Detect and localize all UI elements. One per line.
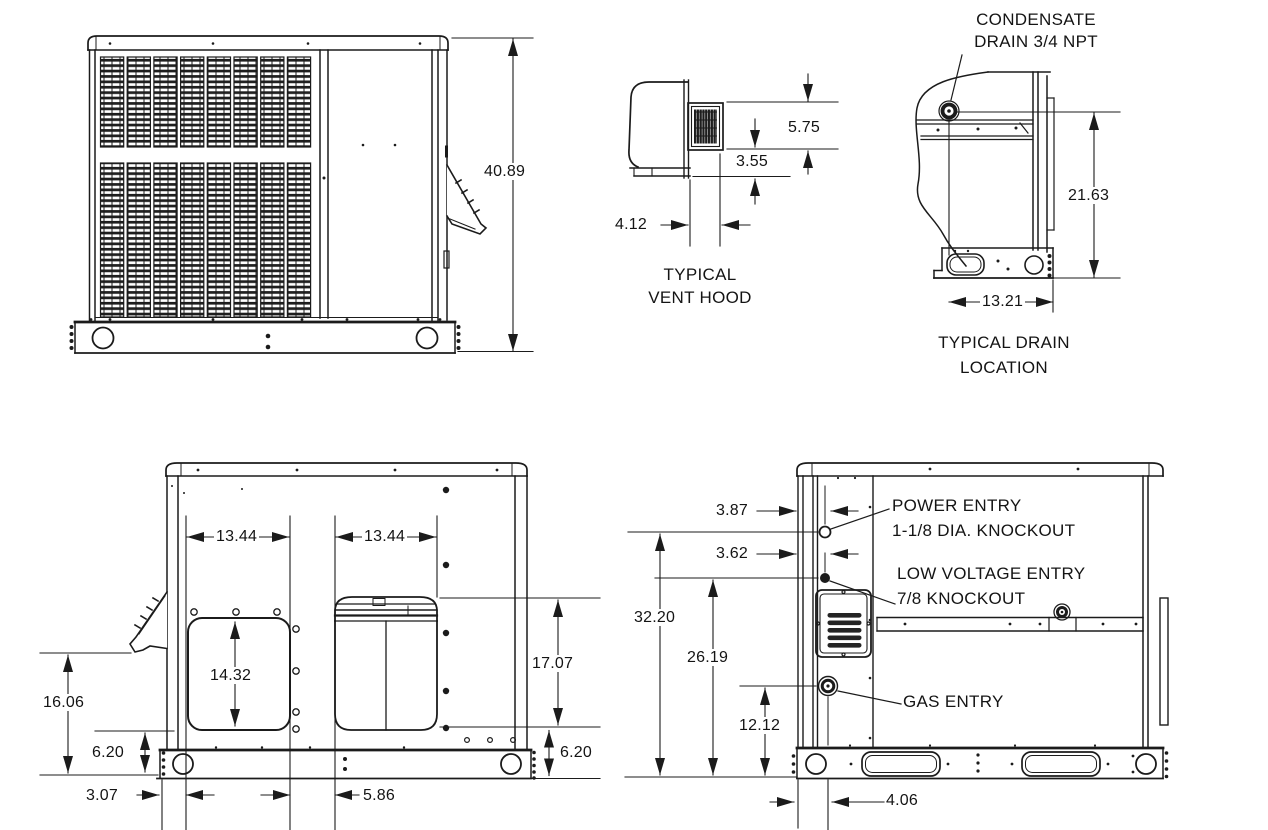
low-voltage-callout-line1: LOW VOLTAGE ENTRY: [897, 565, 1085, 582]
power-entry-callout-line2: 1-1/8 DIA. KNOCKOUT: [892, 522, 1075, 539]
dim-drain-height-text: 21.63: [1066, 187, 1111, 204]
louver-panel: [101, 57, 311, 317]
gas-entry-callout: GAS ENTRY: [903, 693, 1004, 710]
mounting-rail: [917, 120, 1033, 140]
dim-gas-height-text: 12.12: [737, 717, 782, 734]
combustion-air-louver: [816, 590, 871, 657]
line-art: [0, 0, 1268, 830]
dim-opening-gap-text: 5.86: [363, 787, 395, 804]
dim-power-height-text: 32.20: [632, 609, 677, 626]
condensate-drain-fitting: [939, 101, 959, 121]
dim-right-height-text: 17.07: [530, 655, 575, 672]
panel-screw-dots: [443, 487, 449, 731]
dim-return-width-text: 13.44: [362, 528, 407, 545]
dim-base-right-text: 6.20: [560, 744, 592, 761]
low-voltage-leader-line: [830, 581, 895, 604]
gas-leader-line: [838, 691, 901, 704]
dimensional-drawing-sheet: 40.89 5.75 3.55 4.12 TYPICAL VENT HOOD C…: [0, 0, 1268, 830]
power-entry-callout-line1: POWER ENTRY: [892, 497, 1022, 514]
dim-gas-offset-text: 4.06: [886, 792, 918, 809]
dim-overall-height-text: 40.89: [482, 163, 527, 180]
power-entry-knockout: [820, 527, 831, 538]
side-tab: [1160, 598, 1168, 725]
vent-hood-caption: TYPICAL VENT HOOD: [635, 263, 765, 309]
dim-supply-width-text: 13.44: [214, 528, 259, 545]
vent-hood-profile: [629, 82, 688, 167]
dim-vent-depth-text: 4.12: [615, 216, 647, 233]
cap-screw-dots: [109, 42, 422, 45]
view-typical-vent-hood: [629, 74, 838, 246]
view-typical-drain-location: [916, 55, 1120, 312]
rigging-hole: [173, 754, 193, 774]
grommet: [1054, 604, 1070, 620]
view-duct-side-elevation: [40, 463, 600, 830]
gas-entry-fitting: [819, 677, 838, 696]
low-voltage-knockout: [820, 573, 830, 583]
base-corner: [934, 248, 1053, 278]
rigging-hole: [417, 328, 438, 349]
rigging-hole: [501, 754, 521, 774]
dim-base-left-text: 6.20: [92, 744, 124, 761]
dim-supply-height-text: 14.32: [208, 667, 253, 684]
condensate-drain-callout: CONDENSATE DRAIN 3/4 NPT: [952, 9, 1120, 53]
condensate-callout-line2: DRAIN 3/4 NPT: [952, 31, 1120, 53]
dim-left-height-text: 16.06: [41, 694, 86, 711]
vent-hood-caption-line2: VENT HOOD: [635, 286, 765, 309]
drain-dimensions: [949, 112, 1120, 312]
base-rail: [792, 748, 1169, 779]
rigging-hole: [806, 754, 826, 774]
flue-hood: [130, 592, 167, 652]
power-leader-line: [831, 509, 889, 529]
base-rail: [70, 318, 461, 353]
dim-lv-height-text: 26.19: [685, 649, 730, 666]
rigging-hole: [1136, 754, 1156, 774]
view-control-side-elevation: [625, 463, 1168, 830]
condensate-callout-line1: CONDENSATE: [952, 9, 1120, 31]
control-side-dimensions: [625, 511, 884, 828]
dim-drain-width-text: 13.21: [980, 293, 1025, 310]
flue-hood: [447, 147, 487, 234]
return-duct-opening: [335, 597, 437, 730]
base-rail: [157, 738, 536, 780]
dim-lv-offset-text: 3.62: [716, 545, 748, 562]
rigging-hole: [93, 328, 114, 349]
rigging-hole: [1025, 256, 1043, 274]
dim-vent-mid-text: 3.55: [736, 153, 768, 170]
low-voltage-callout-line2: 7/8 KNOCKOUT: [897, 590, 1025, 607]
drain-caption-line1: TYPICAL DRAIN: [918, 330, 1090, 355]
mid-rail: [877, 618, 1143, 632]
drain-caption-line2: LOCATION: [918, 355, 1090, 380]
dim-vent-top-text: 5.75: [788, 119, 820, 136]
duct-side-dimensions: [40, 516, 600, 830]
dim-power-offset-text: 3.87: [716, 502, 748, 519]
vent-hood-caption-line1: TYPICAL: [635, 263, 765, 286]
dim-corner-offset-text: 3.07: [86, 787, 118, 804]
drain-location-caption: TYPICAL DRAIN LOCATION: [918, 330, 1090, 380]
view-unit-side-elevation: [70, 36, 534, 353]
